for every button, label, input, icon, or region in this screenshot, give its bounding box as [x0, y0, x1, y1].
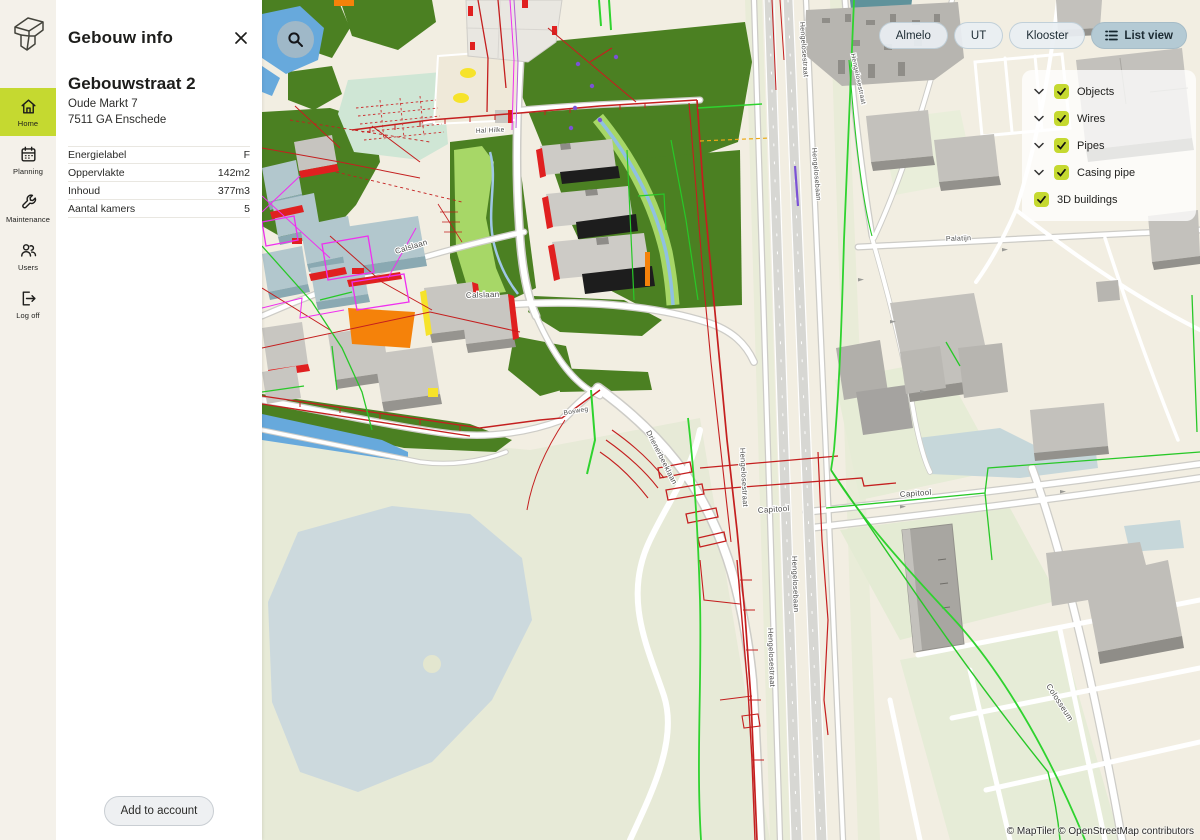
sidebar-item-users[interactable]: Users	[0, 232, 56, 280]
list-view-label: List view	[1124, 30, 1173, 42]
map-canvas[interactable]: Hal Hilke Calslaan Calslaan Bosweg Drien…	[262, 0, 1200, 840]
sidebar-item-maintenance[interactable]: Maintenance	[0, 184, 56, 232]
building-info-panel: Gebouw info Gebouwstraat 2 Oude Markt 7 …	[56, 0, 262, 840]
sidebar-item-logoff[interactable]: Log off	[0, 280, 56, 328]
detail-label: Oppervlakte	[68, 167, 125, 179]
layer-label: 3D buildings	[1057, 194, 1118, 206]
sidebar-item-label: Users	[18, 263, 38, 272]
detail-label: Energielabel	[68, 149, 126, 161]
app-root: Home Planning Maintenance Users	[0, 0, 1200, 840]
layer-label: Pipes	[1077, 140, 1105, 152]
building-name: Gebouwstraat 2	[68, 74, 250, 94]
detail-label: Inhoud	[68, 185, 100, 197]
detail-value: 5	[244, 203, 250, 215]
checkbox-checked-icon[interactable]	[1054, 84, 1069, 99]
location-button-ut[interactable]: UT	[954, 22, 1003, 49]
layer-label: Casing pipe	[1077, 167, 1135, 179]
layer-row-3d-buildings[interactable]: 3D buildings	[1034, 186, 1184, 213]
app-logo	[0, 0, 56, 71]
sidebar-nav: Home Planning Maintenance Users	[0, 88, 56, 328]
sidebar-item-label: Maintenance	[6, 215, 50, 224]
sidebar-item-label: Log off	[16, 311, 40, 320]
table-row: Energielabel F	[68, 146, 250, 164]
sidebar-item-label: Home	[18, 119, 38, 128]
map-attribution: © MapTiler © OpenStreetMap contributors	[1007, 826, 1194, 837]
chevron-down-icon[interactable]	[1034, 115, 1046, 122]
address-line-1: Oude Markt 7	[68, 97, 250, 113]
search-button[interactable]	[277, 21, 314, 58]
list-icon	[1105, 30, 1118, 41]
layer-label: Wires	[1077, 113, 1105, 125]
table-row: Oppervlakte 142m2	[68, 164, 250, 182]
table-row: Aantal kamers 5	[68, 200, 250, 218]
detail-value: 377m3	[218, 185, 250, 197]
checkbox-checked-icon[interactable]	[1054, 111, 1069, 126]
location-button-klooster[interactable]: Klooster	[1009, 22, 1085, 49]
logout-icon	[19, 289, 38, 308]
detail-value: F	[244, 149, 250, 161]
sidebar-item-home[interactable]: Home	[0, 88, 56, 136]
users-icon	[19, 241, 38, 260]
sidebar: Home Planning Maintenance Users	[0, 0, 56, 840]
search-icon	[287, 31, 304, 48]
wrench-icon	[19, 193, 38, 212]
detail-value: 142m2	[218, 167, 250, 179]
calendar-icon	[19, 145, 38, 164]
sidebar-item-planning[interactable]: Planning	[0, 136, 56, 184]
layers-panel: Objects Wires Pipes Casing pipe 3D build…	[1022, 70, 1196, 221]
close-icon[interactable]	[232, 29, 250, 47]
checkbox-checked-icon[interactable]	[1054, 165, 1069, 180]
checkbox-checked-icon[interactable]	[1034, 192, 1049, 207]
checkbox-checked-icon[interactable]	[1054, 138, 1069, 153]
panel-title: Gebouw info	[68, 28, 173, 48]
logo-isometric-t-icon	[8, 10, 48, 56]
add-to-account-button[interactable]: Add to account	[104, 796, 215, 826]
layer-label: Objects	[1077, 86, 1114, 98]
address-line-2: 7511 GA Enschede	[68, 113, 250, 129]
table-row: Inhoud 377m3	[68, 182, 250, 200]
layer-row-pipes[interactable]: Pipes	[1034, 132, 1184, 159]
chevron-down-icon[interactable]	[1034, 169, 1046, 176]
layer-row-objects[interactable]: Objects	[1034, 78, 1184, 105]
layer-row-wires[interactable]: Wires	[1034, 105, 1184, 132]
map-top-controls: Almelo UT Klooster List view	[879, 22, 1187, 49]
sidebar-item-label: Planning	[13, 167, 43, 176]
location-button-almelo[interactable]: Almelo	[879, 22, 948, 49]
layer-row-casing-pipe[interactable]: Casing pipe	[1034, 159, 1184, 186]
list-view-button[interactable]: List view	[1091, 22, 1187, 49]
street-label: Palatijn	[946, 235, 972, 243]
street-label: Calslaan	[466, 290, 500, 300]
detail-label: Aantal kamers	[68, 203, 135, 215]
chevron-down-icon[interactable]	[1034, 142, 1046, 149]
building-details-table: Energielabel F Oppervlakte 142m2 Inhoud …	[68, 146, 250, 218]
home-icon	[19, 97, 38, 116]
chevron-down-icon[interactable]	[1034, 88, 1046, 95]
